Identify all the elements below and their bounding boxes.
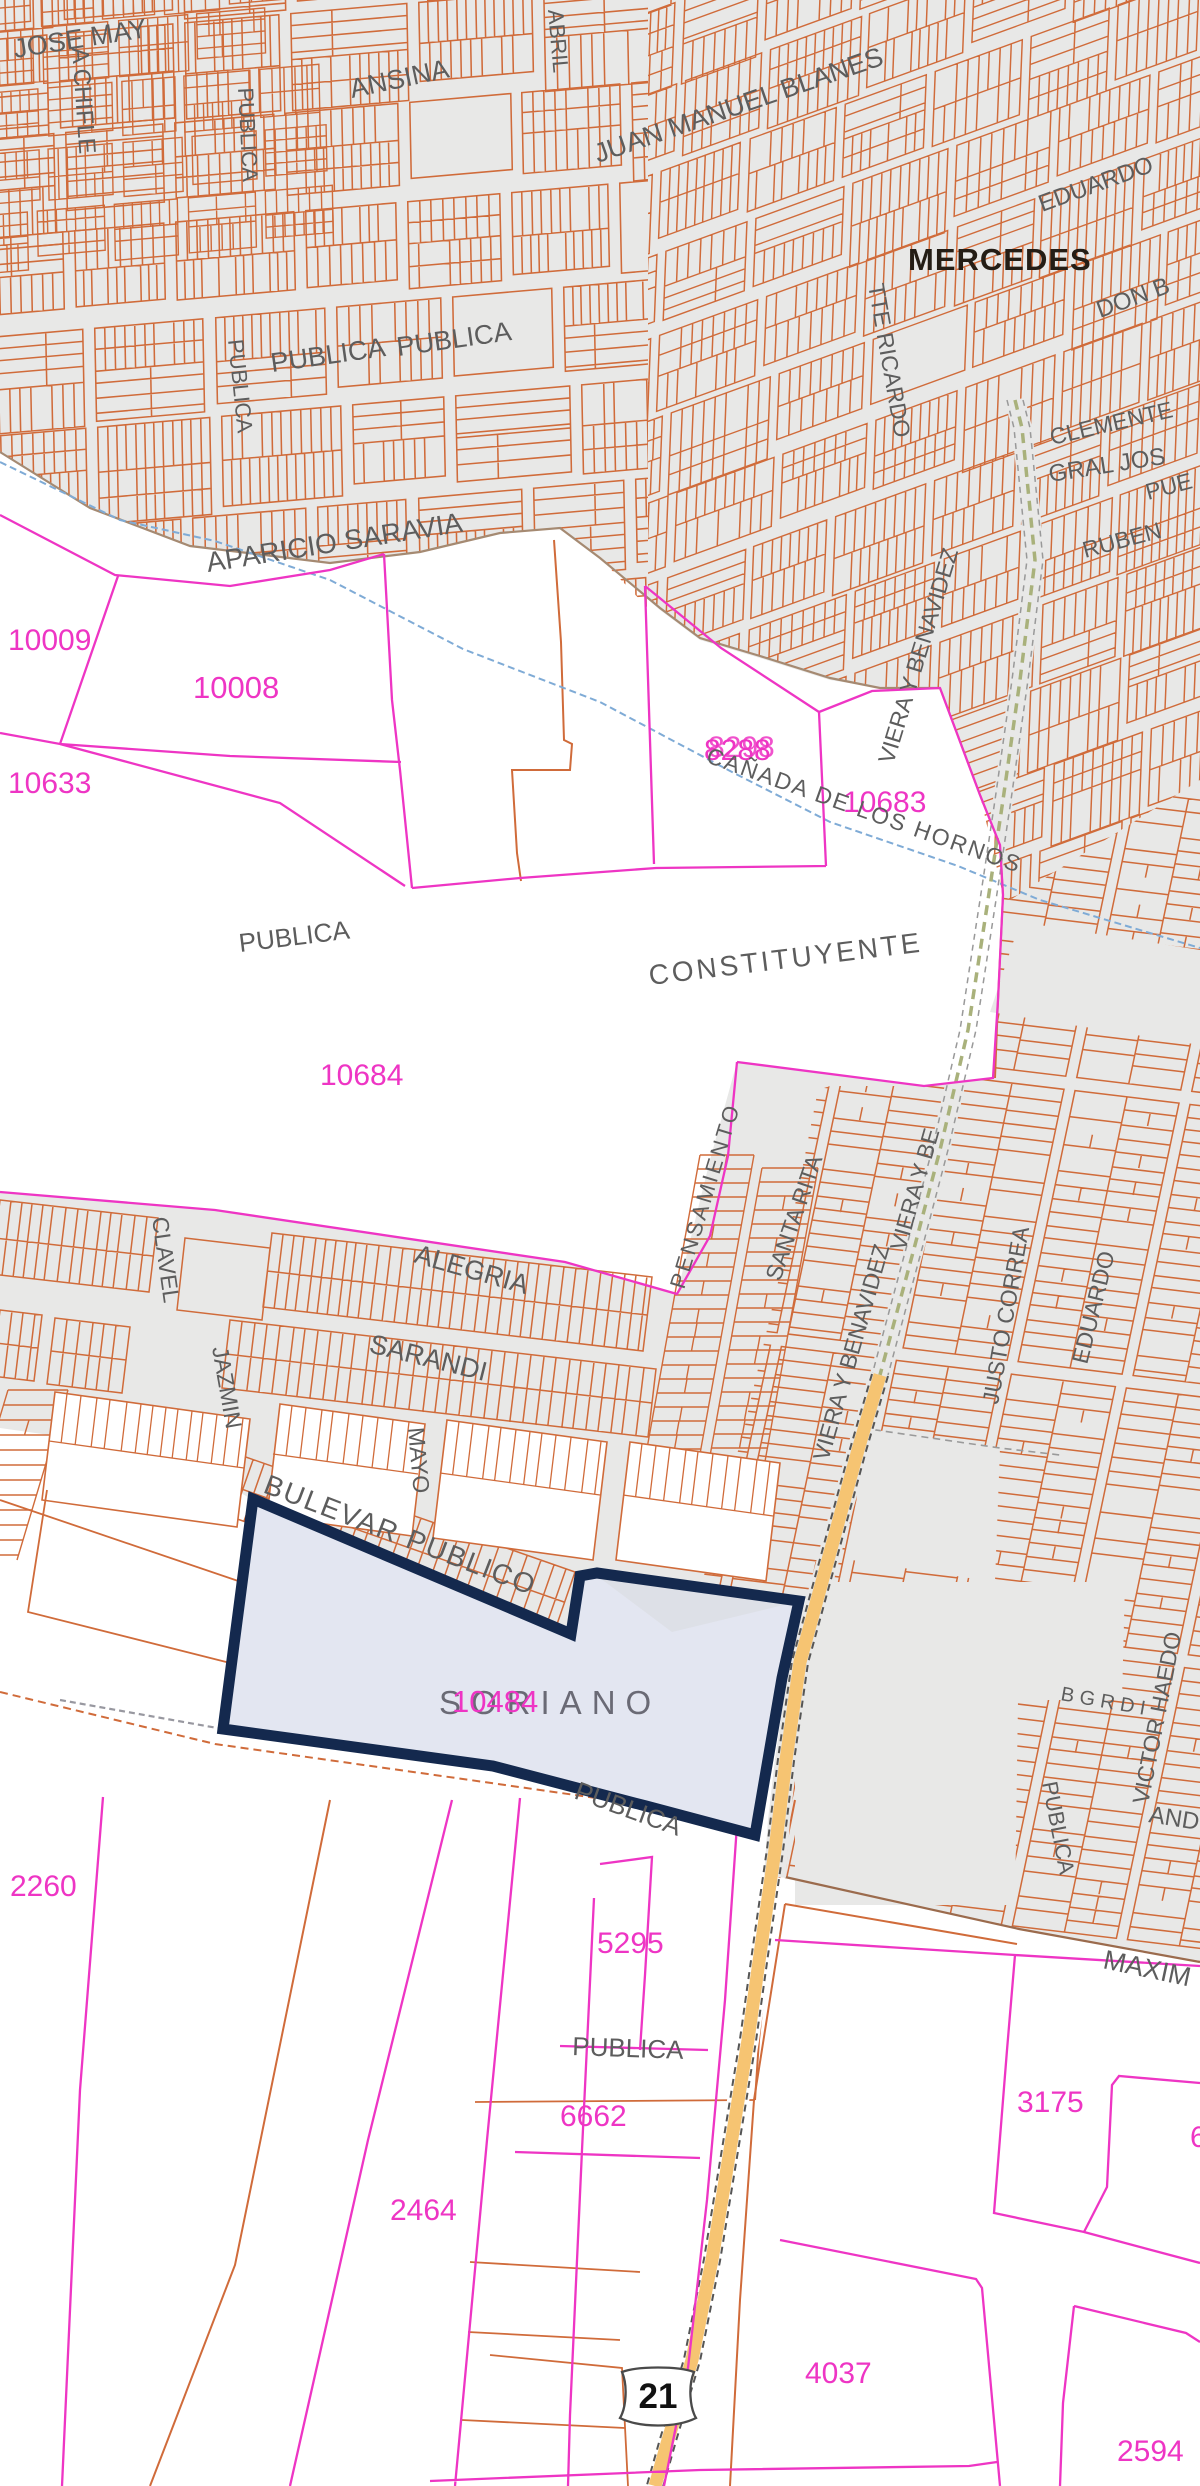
svg-text:6: 6 (1190, 2121, 1200, 2154)
svg-text:21: 21 (639, 2377, 678, 2416)
svg-text:PUBLICA: PUBLICA (572, 2031, 685, 2065)
svg-text:5295: 5295 (597, 1927, 664, 1960)
svg-text:2464: 2464 (390, 2194, 457, 2227)
svg-text:10684: 10684 (320, 1059, 403, 1092)
svg-text:10009: 10009 (8, 624, 91, 657)
svg-text:4037: 4037 (805, 2357, 872, 2390)
svg-text:2594: 2594 (1117, 2435, 1184, 2468)
svg-text:MERCEDES: MERCEDES (908, 242, 1092, 277)
svg-text:10008: 10008 (193, 670, 279, 705)
svg-text:6662: 6662 (560, 2100, 627, 2133)
svg-text:10633: 10633 (8, 767, 91, 800)
svg-text:3175: 3175 (1017, 2086, 1084, 2119)
svg-text:10484: 10484 (452, 1684, 538, 1719)
svg-text:2260: 2260 (10, 1870, 77, 1903)
svg-text:PUBLICA: PUBLICA (233, 87, 263, 183)
